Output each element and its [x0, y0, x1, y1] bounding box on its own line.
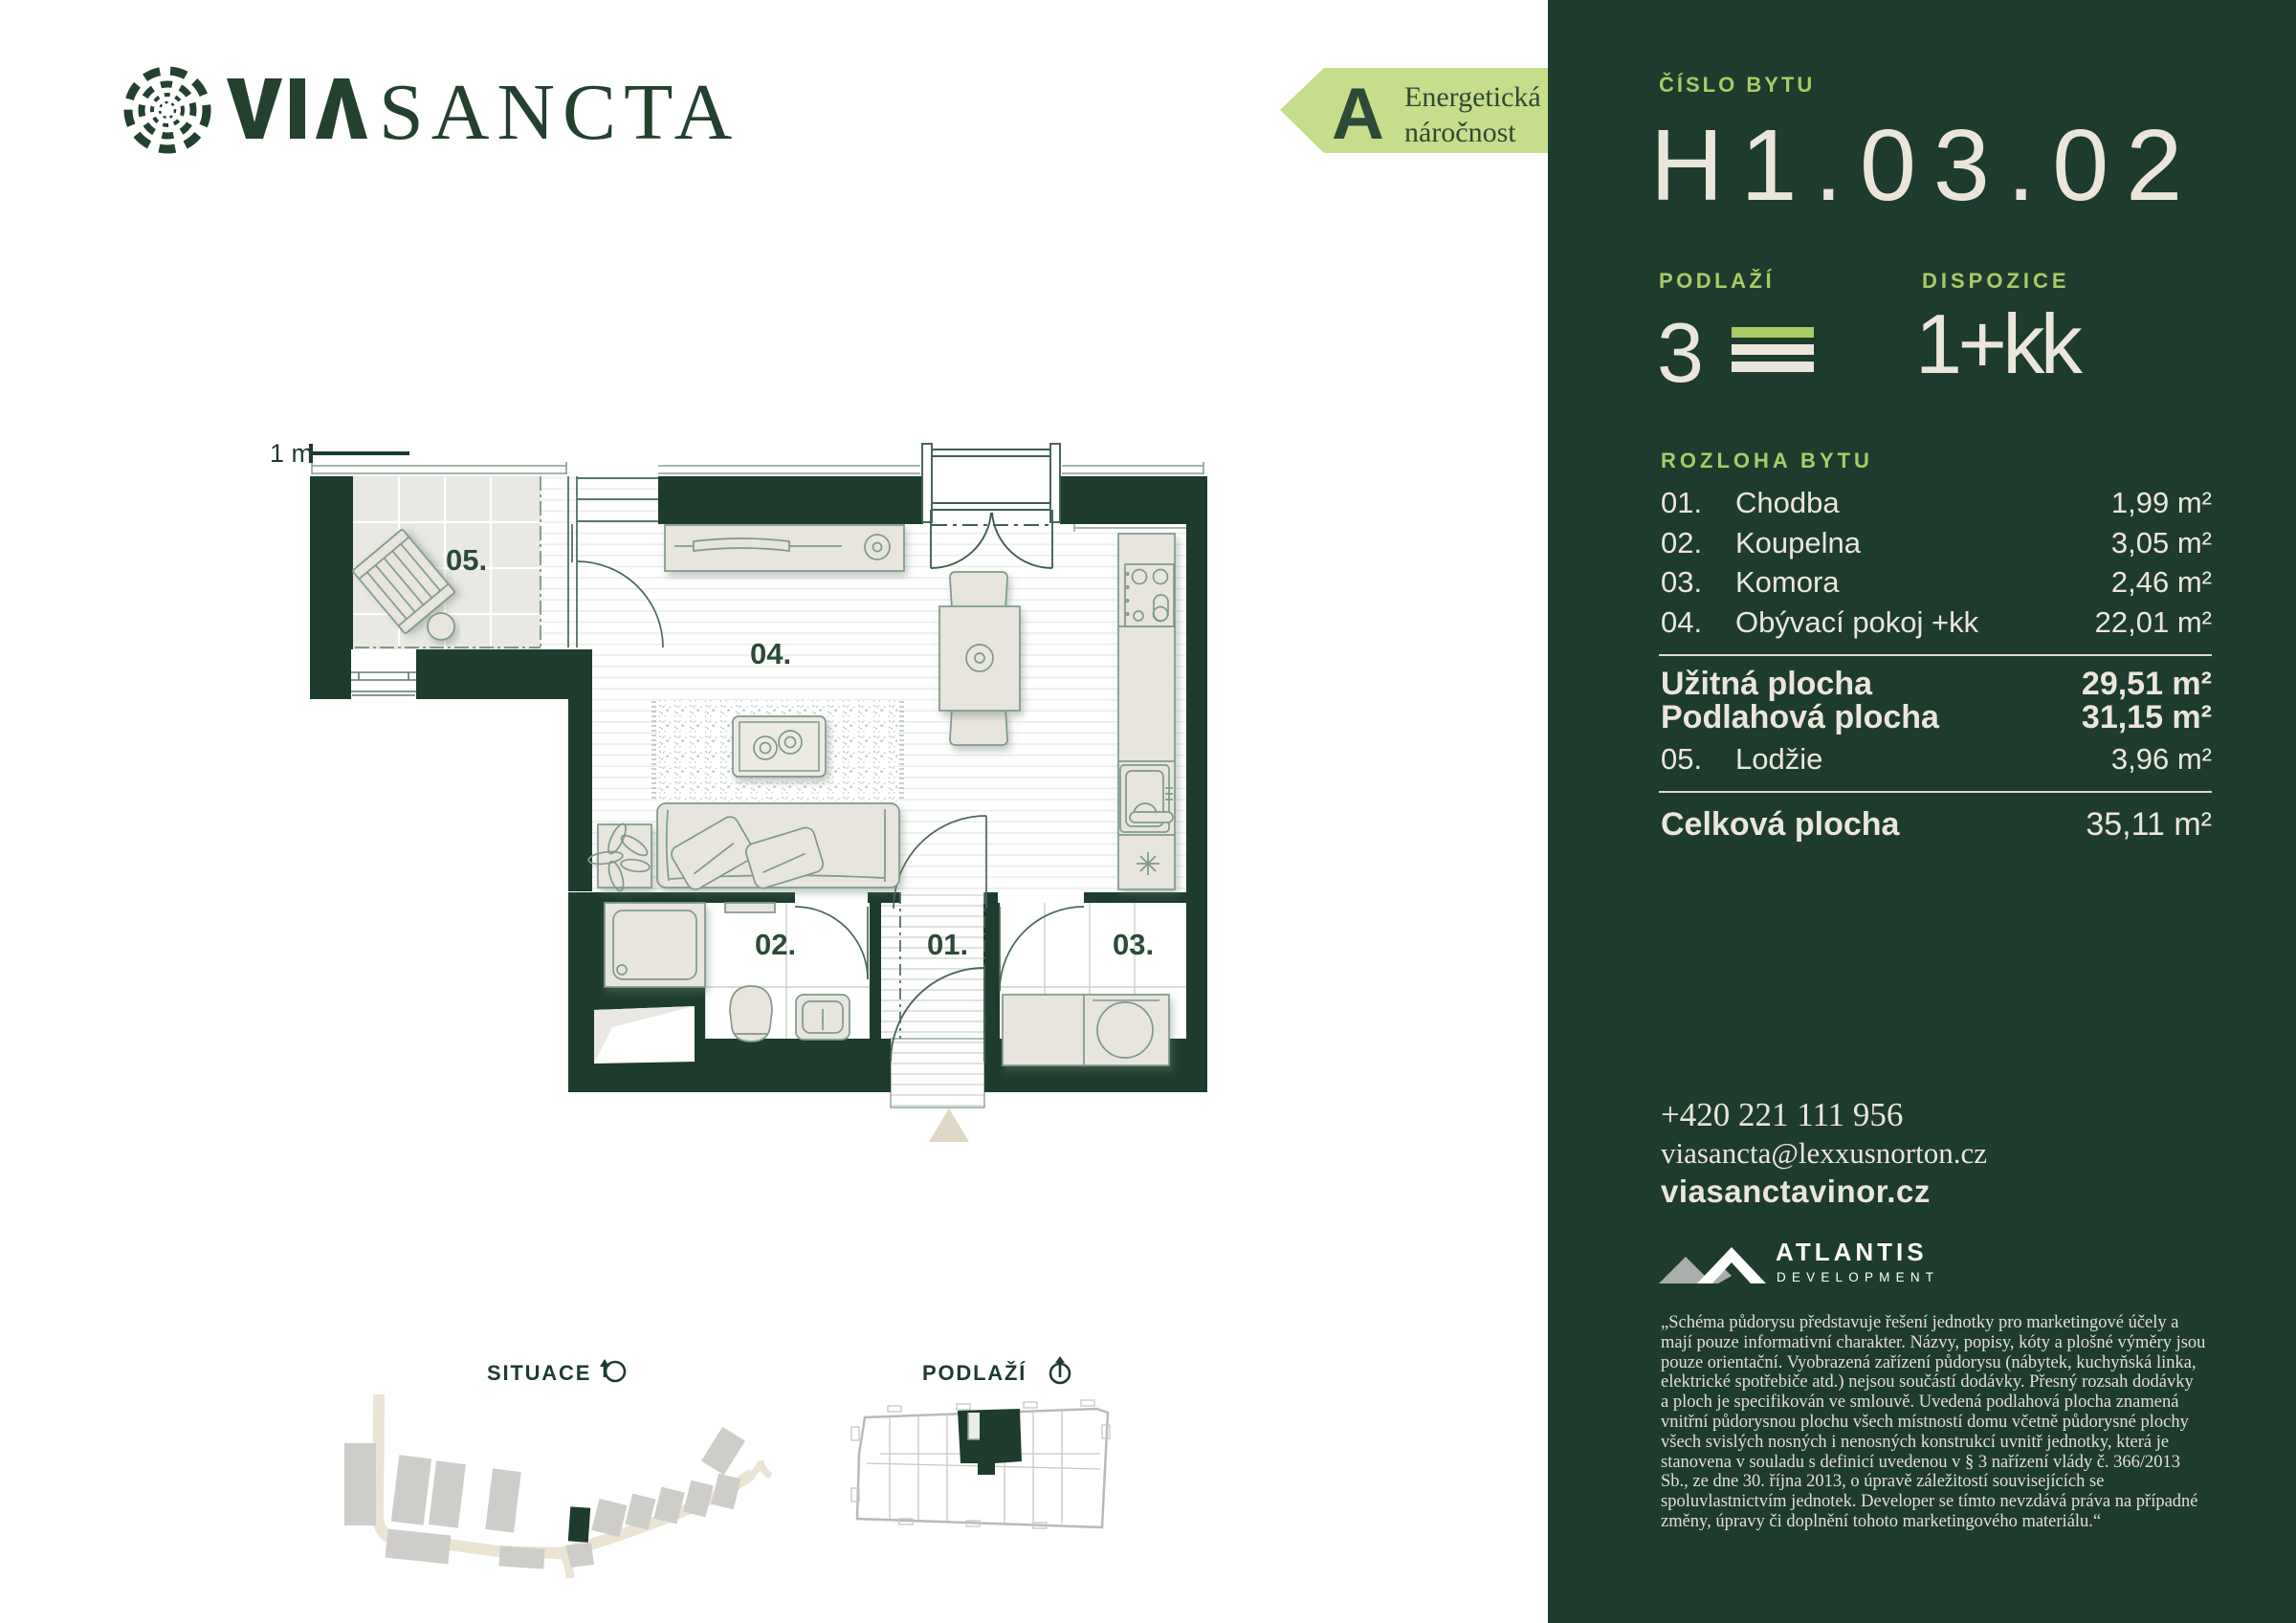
- svg-text:01.: 01.: [927, 928, 968, 961]
- svg-text:03.: 03.: [1113, 928, 1154, 961]
- svg-text:02.: 02.: [755, 928, 796, 961]
- svg-text:náročnost: náročnost: [1404, 117, 1516, 148]
- svg-text:SANCTA: SANCTA: [379, 68, 740, 157]
- svg-text:ATLANTIS: ATLANTIS: [1776, 1238, 1928, 1266]
- svg-text:DEVELOPMENT: DEVELOPMENT: [1777, 1270, 1939, 1284]
- svg-text:05.: 05.: [446, 543, 487, 577]
- svg-text:A: A: [1332, 74, 1384, 155]
- svg-text:04.: 04.: [750, 637, 791, 670]
- svg-text:Energetická: Energetická: [1404, 81, 1541, 113]
- svg-text:1 m: 1 m: [270, 439, 313, 468]
